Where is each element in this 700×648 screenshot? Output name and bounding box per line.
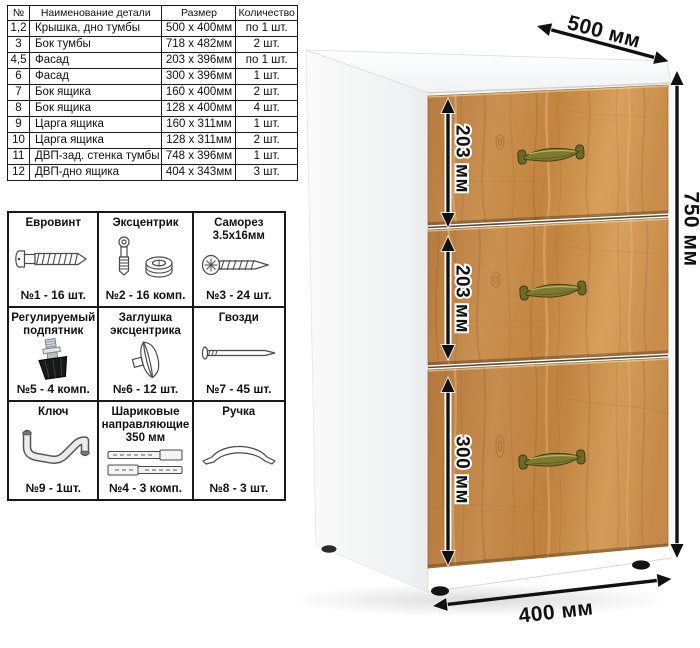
cabinet-foot	[632, 560, 650, 569]
cabinet-side-panel	[306, 50, 428, 592]
dimension-arrow-height	[671, 71, 684, 558]
assembly-spec-sheet: № Наименование детали Размер Количество …	[0, 0, 700, 648]
dimension-label-drawer-middle: 203 мм	[452, 265, 473, 333]
cabinet-foot	[431, 586, 449, 596]
cabinet-illustration: 500 мм 750 мм 400 мм 203 мм 203 мм 300 м…	[0, 0, 700, 648]
dimension-label-width: 500 мм	[565, 11, 643, 53]
dimension-label-drawer-top: 203 мм	[452, 125, 473, 193]
cabinet-foot	[322, 545, 337, 553]
dimension-label-drawer-bottom: 300 мм	[452, 436, 473, 504]
dimension-label-height: 750 мм	[680, 192, 700, 267]
